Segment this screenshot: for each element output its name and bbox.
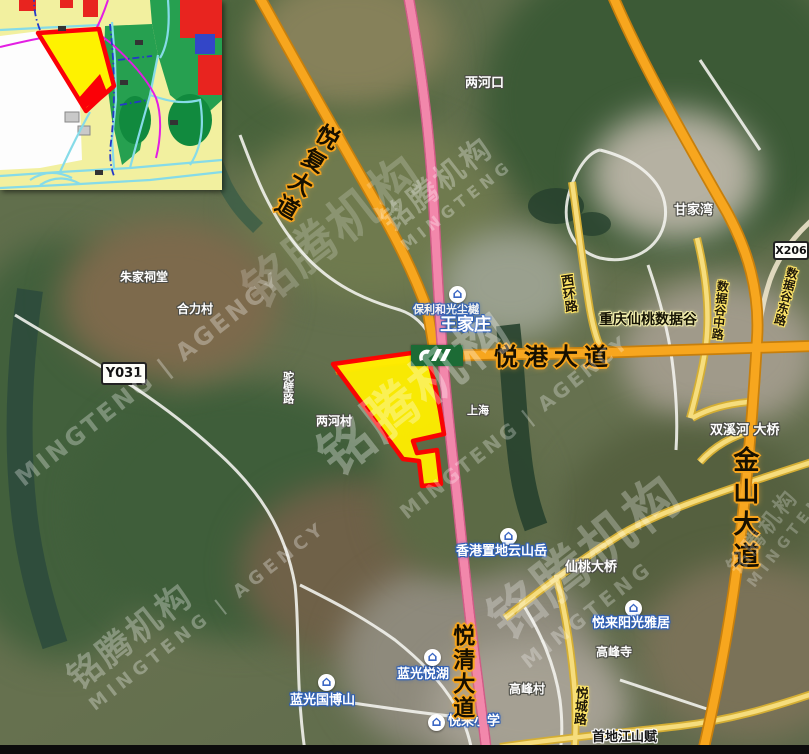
watermark-en: MINGTENG: [397, 156, 516, 255]
inset-blue-zone: [195, 34, 215, 54]
watermark-cn: 铭腾机构: [723, 485, 804, 579]
watermark-text: 铭腾机构 MINGTENG: [468, 452, 711, 674]
watermark-text: 铭腾机构 MINGTENG | AGENCY: [55, 478, 331, 715]
watermark-cn: 铭腾机构: [375, 130, 501, 239]
watermark-text: MINGTENG | AGENCY: [10, 266, 288, 492]
watermark-cn: 铭腾机构: [60, 575, 201, 698]
watermark-text: MINGTENG | AGENCY: [395, 330, 634, 524]
planning-map-inset: [0, 0, 222, 190]
watermark-text: 铭腾机构 MINGTENG: [370, 121, 516, 255]
watermark-text: 铭腾机构: [225, 134, 436, 321]
inset-map: [0, 0, 222, 190]
watermark-cn: 铭腾机构: [476, 462, 694, 652]
watermark-text: 铭腾机构 MINGTENG: [718, 457, 809, 591]
satellite-map-canvas[interactable]: 两河村 ⌂ 悦来小学 蓝光悦湖 ⌂ 悦复大道 悦港大道 金山大道 悦清大道 数据…: [0, 0, 809, 754]
watermark-text: 铭腾机构: [298, 288, 526, 491]
inset-red-zone: [180, 0, 222, 38]
watermark-en: MINGTENG: [743, 477, 809, 591]
bottom-black-bar: [0, 745, 809, 754]
watermark-en: MINGTENG: [517, 514, 711, 673]
watermark-en: MINGTENG | AGENCY: [85, 517, 330, 715]
